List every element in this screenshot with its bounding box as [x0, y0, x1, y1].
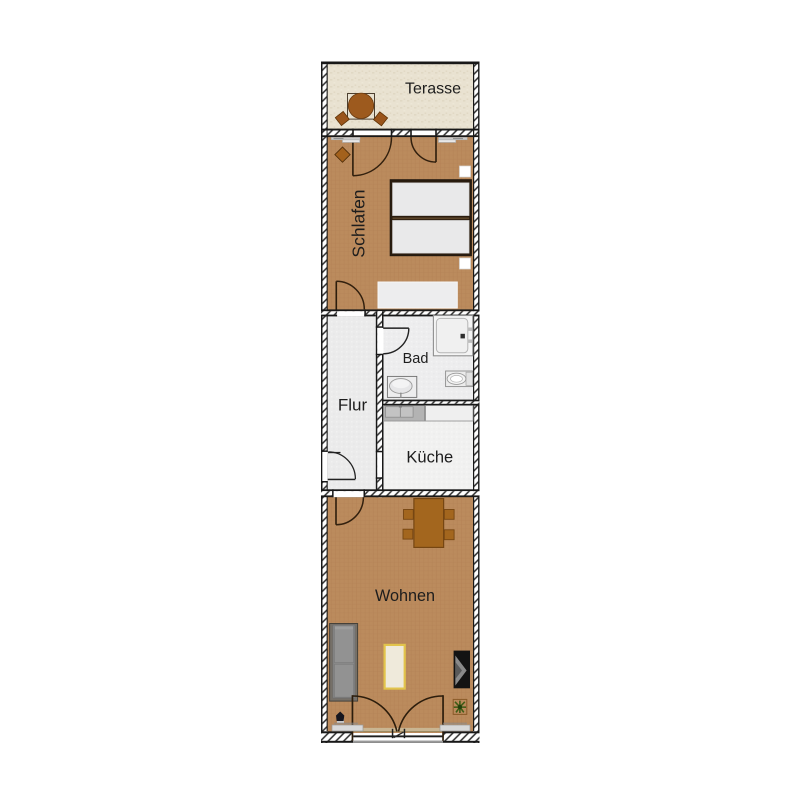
svg-text:Terasse: Terasse	[405, 81, 461, 98]
svg-text:Küche: Küche	[406, 449, 453, 467]
svg-text:Bad: Bad	[403, 351, 429, 367]
svg-text:Wohnen: Wohnen	[375, 587, 435, 605]
svg-text:Flur: Flur	[338, 396, 368, 415]
svg-text:Schlafen: Schlafen	[349, 189, 369, 257]
